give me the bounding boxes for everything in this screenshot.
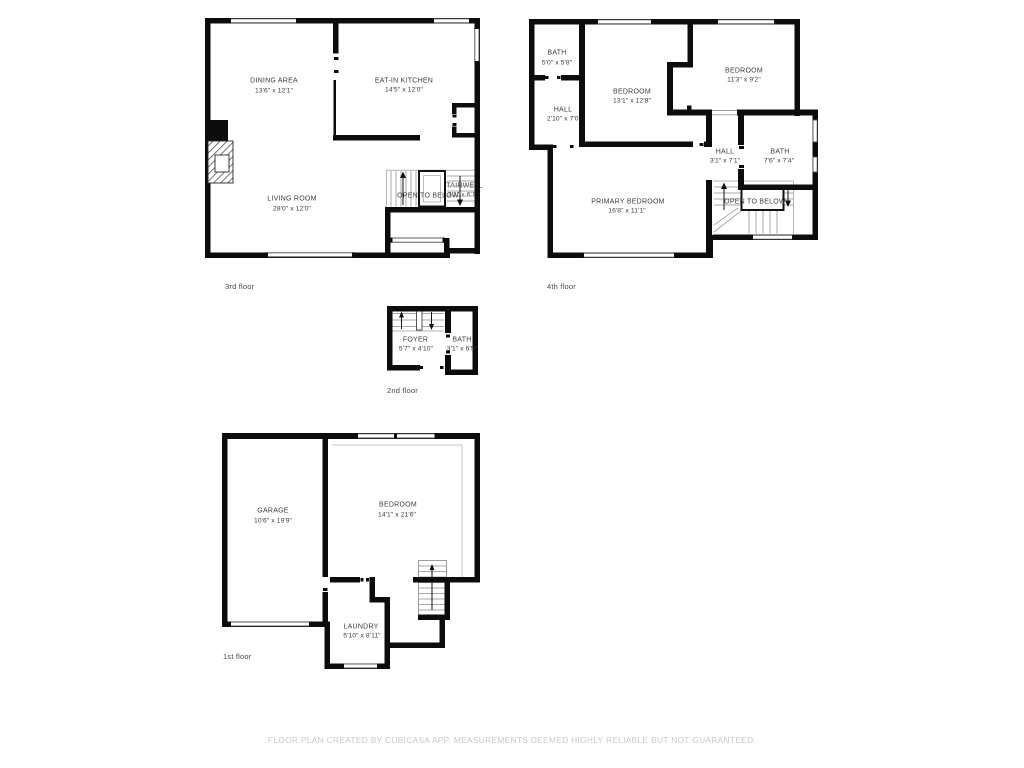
floor-plan-page: STAIRWELL 3'1" x 6'1" 2'10" x 7'0" 3'1" … [0, 0, 1024, 768]
windows-1st [229, 433, 438, 668]
windows-4th [582, 19, 818, 257]
plan-2nd-floor [387, 306, 478, 375]
floor-plan-drawing [0, 0, 1024, 768]
plan-3rd-floor [205, 18, 480, 258]
walls-1st [222, 433, 480, 669]
plan-1st-floor [222, 433, 480, 669]
walls-3rd [205, 18, 480, 258]
bedroom-inner-line [332, 445, 462, 577]
fireplace-3rd [205, 120, 233, 183]
plan-4th-floor [529, 19, 818, 258]
walls-4th [529, 19, 818, 258]
